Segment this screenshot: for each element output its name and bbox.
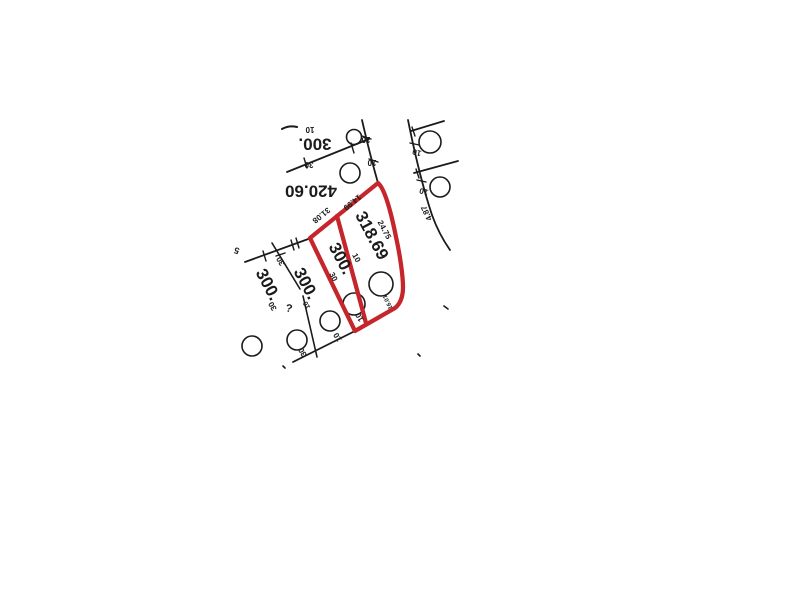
scan-dot xyxy=(418,354,420,356)
scan-dot xyxy=(444,306,448,309)
dimension-label: 16.01 xyxy=(382,293,394,310)
scan-mark: ? xyxy=(285,302,294,315)
lot-circle-symbol xyxy=(340,163,360,183)
dimension-label: 10 xyxy=(361,135,370,144)
scan-dot xyxy=(283,366,285,368)
lot-line xyxy=(411,121,444,131)
lot-circle-symbol xyxy=(347,130,362,145)
street-edge-east xyxy=(432,215,450,250)
scan-mark: 5 xyxy=(233,245,241,256)
lot-circle-symbol xyxy=(369,272,393,296)
lot-area-label-top: 300. xyxy=(298,135,331,154)
dimension-label: 30 xyxy=(304,160,313,169)
survey-linework-layer xyxy=(245,120,458,368)
dimension-label: 10 xyxy=(418,186,429,197)
lot-area-label-300-mid: 300. xyxy=(290,264,322,302)
dimension-label: 10 xyxy=(367,158,376,167)
dimension-label: 30 xyxy=(296,346,309,359)
street-edge-west xyxy=(362,120,378,183)
lot-circle-symbol xyxy=(430,177,450,197)
tick-mark xyxy=(417,180,426,182)
scanned-plat-page: 300.420.60318.69300.300.300.24.7531.0814… xyxy=(0,0,800,600)
dimension-label: 10 xyxy=(305,125,314,134)
lot-area-label-42060: 420.60 xyxy=(285,182,337,201)
lot-labels-layer: 300.420.60318.69300.300.300.24.7531.0814… xyxy=(233,125,434,358)
plat-map-canvas: 300.420.60318.69300.300.300.24.7531.0814… xyxy=(0,0,800,600)
lot-circle-symbol xyxy=(242,336,262,356)
street-edge-east xyxy=(408,120,432,215)
boundary-dash-top xyxy=(282,126,297,129)
lot-circle-symbol xyxy=(320,311,340,331)
tick-mark xyxy=(410,143,419,145)
lot-line xyxy=(414,161,458,173)
lot-area-label-300-left: 300. xyxy=(252,265,284,303)
